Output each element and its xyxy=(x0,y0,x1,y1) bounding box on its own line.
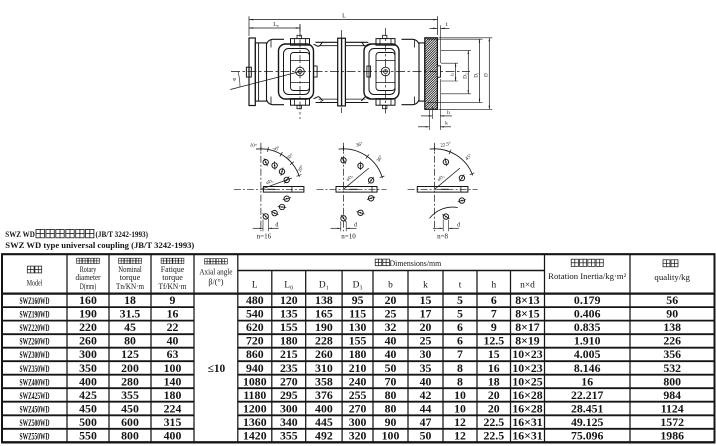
svg-text:quality/kg: quality/kg xyxy=(654,273,690,282)
svg-text:190: 190 xyxy=(79,307,97,321)
svg-text:355: 355 xyxy=(121,388,139,402)
svg-text:270: 270 xyxy=(280,374,298,388)
svg-text:(JB/T 3242-1993): (JB/T 3242-1993) xyxy=(96,229,149,239)
svg-text:40: 40 xyxy=(385,334,397,348)
svg-text:10: 10 xyxy=(454,388,466,402)
svg-text:224: 224 xyxy=(164,401,182,415)
svg-text:90: 90 xyxy=(385,415,397,429)
svg-text:135: 135 xyxy=(280,307,298,321)
svg-text:16: 16 xyxy=(581,374,593,388)
svg-text:400: 400 xyxy=(315,401,333,415)
svg-text:8×19: 8×19 xyxy=(515,334,540,348)
svg-text:95: 95 xyxy=(352,293,364,307)
svg-text:22.5: 22.5 xyxy=(483,428,504,442)
svg-text:300: 300 xyxy=(280,401,298,415)
svg-text:340: 340 xyxy=(280,415,298,429)
svg-text:20°: 20° xyxy=(286,153,295,161)
svg-text:Model: Model xyxy=(27,279,43,288)
svg-text:SWZ450WD: SWZ450WD xyxy=(20,404,50,414)
svg-text:10: 10 xyxy=(454,401,466,415)
svg-text:φD₂: φD₂ xyxy=(436,173,445,182)
svg-text:235: 235 xyxy=(280,361,298,375)
svg-text:270: 270 xyxy=(349,401,367,415)
svg-text:Dimensions/mm: Dimensions/mm xyxy=(390,258,442,268)
svg-text:260: 260 xyxy=(315,347,333,361)
svg-text:350: 350 xyxy=(79,361,97,375)
svg-text:8×17: 8×17 xyxy=(515,320,540,334)
svg-text:10×25: 10×25 xyxy=(512,374,542,388)
svg-text:9: 9 xyxy=(491,320,497,334)
svg-text:1420: 1420 xyxy=(243,428,267,442)
svg-text:25: 25 xyxy=(420,334,432,348)
svg-text:40: 40 xyxy=(167,334,179,348)
svg-text:22: 22 xyxy=(167,320,179,334)
svg-text:SWZ WD type universal coupling: SWZ WD type universal coupling (JB/T 324… xyxy=(5,240,194,250)
svg-text:125: 125 xyxy=(121,347,139,361)
svg-text:17: 17 xyxy=(420,307,432,321)
svg-text:115: 115 xyxy=(349,307,366,321)
svg-text:22.217: 22.217 xyxy=(571,388,604,402)
svg-text:d: d xyxy=(457,222,460,228)
svg-text:300: 300 xyxy=(349,415,367,429)
svg-text:355: 355 xyxy=(280,428,298,442)
svg-text:SWZ190WD: SWZ190WD xyxy=(20,310,50,320)
svg-text:400: 400 xyxy=(164,428,182,442)
svg-text:8×15: 8×15 xyxy=(515,307,540,321)
svg-text:295: 295 xyxy=(280,388,298,402)
svg-text:180: 180 xyxy=(164,388,182,402)
svg-text:4.005: 4.005 xyxy=(574,347,601,361)
svg-text:SWZ550WD: SWZ550WD xyxy=(20,431,50,441)
svg-text:75.096: 75.096 xyxy=(571,428,604,442)
svg-text:≤10: ≤10 xyxy=(208,363,226,375)
svg-text:80: 80 xyxy=(385,388,397,402)
svg-text:16: 16 xyxy=(167,307,179,321)
svg-text:240: 240 xyxy=(349,374,367,388)
svg-text:L: L xyxy=(342,12,346,19)
svg-text:63: 63 xyxy=(167,347,179,361)
svg-text:49.125: 49.125 xyxy=(571,415,604,429)
svg-text:D₁: D₁ xyxy=(319,280,329,290)
svg-text:7: 7 xyxy=(491,307,497,321)
svg-text:22.5: 22.5 xyxy=(483,415,504,429)
svg-text:D₃: D₃ xyxy=(353,280,363,290)
svg-text:200: 200 xyxy=(121,361,139,375)
svg-text:40: 40 xyxy=(385,347,397,361)
svg-text:940: 940 xyxy=(246,361,264,375)
svg-text:φD₂: φD₂ xyxy=(345,173,354,182)
svg-text:n=16: n=16 xyxy=(257,232,272,240)
svg-text:20: 20 xyxy=(488,388,500,402)
svg-text:16×28: 16×28 xyxy=(512,388,542,402)
svg-text:D: D xyxy=(485,73,490,77)
svg-text:40: 40 xyxy=(420,374,432,388)
svg-text:44: 44 xyxy=(420,401,432,415)
svg-text:480: 480 xyxy=(246,293,264,307)
svg-text:18: 18 xyxy=(124,293,136,307)
svg-text:d: d xyxy=(275,222,278,228)
svg-text:1360: 1360 xyxy=(243,415,267,429)
svg-text:450: 450 xyxy=(79,401,97,415)
svg-text:b: b xyxy=(451,73,456,76)
svg-text:D₃: D₃ xyxy=(464,73,469,79)
svg-text:280: 280 xyxy=(121,374,139,388)
svg-text:36°: 36° xyxy=(376,155,384,164)
svg-text:6: 6 xyxy=(491,293,497,307)
svg-text:SWZ350WD: SWZ350WD xyxy=(20,364,50,374)
svg-text:9: 9 xyxy=(170,293,176,307)
svg-text:h: h xyxy=(447,110,450,116)
svg-text:SWZ400WD: SWZ400WD xyxy=(20,377,50,387)
svg-text:h: h xyxy=(491,280,496,290)
svg-text:t: t xyxy=(446,22,448,28)
svg-text:SWZ160WD: SWZ160WD xyxy=(20,296,50,306)
svg-text:20: 20 xyxy=(488,401,500,415)
svg-text:445: 445 xyxy=(315,415,333,429)
svg-text:130: 130 xyxy=(349,320,367,334)
svg-text:n=10: n=10 xyxy=(341,232,356,240)
svg-text:15: 15 xyxy=(420,293,432,307)
svg-text:260: 260 xyxy=(79,334,97,348)
svg-text:226: 226 xyxy=(663,334,681,348)
svg-text:Tf/KN·m: Tf/KN·m xyxy=(159,282,188,291)
svg-text:30: 30 xyxy=(420,347,432,361)
svg-text:138: 138 xyxy=(663,320,681,334)
svg-text:160: 160 xyxy=(79,293,97,307)
svg-text:358: 358 xyxy=(315,374,333,388)
svg-text:300: 300 xyxy=(79,347,97,361)
svg-text:190: 190 xyxy=(315,320,333,334)
svg-text:7: 7 xyxy=(457,347,463,361)
svg-text:0.179: 0.179 xyxy=(574,293,601,307)
svg-text:80: 80 xyxy=(124,334,136,348)
svg-text:18: 18 xyxy=(488,374,500,388)
svg-text:155: 155 xyxy=(280,320,298,334)
svg-text:6: 6 xyxy=(457,320,463,334)
svg-text:140: 140 xyxy=(164,374,182,388)
svg-text:50: 50 xyxy=(385,361,397,375)
svg-text:450: 450 xyxy=(121,401,139,415)
svg-text:90: 90 xyxy=(666,307,678,321)
svg-text:Axial angle: Axial angle xyxy=(199,268,232,277)
svg-text:1200: 1200 xyxy=(243,401,267,415)
svg-text:210: 210 xyxy=(349,361,367,375)
svg-text:15: 15 xyxy=(488,347,500,361)
svg-text:984: 984 xyxy=(663,388,681,402)
svg-text:138: 138 xyxy=(315,293,333,307)
svg-text:425: 425 xyxy=(79,388,97,402)
svg-text:492: 492 xyxy=(315,428,333,442)
svg-text:L₀: L₀ xyxy=(273,22,279,28)
svg-text:180: 180 xyxy=(280,334,298,348)
svg-text:D₁: D₁ xyxy=(475,72,480,78)
svg-text:5: 5 xyxy=(457,293,463,307)
svg-text:SWZ220WD: SWZ220WD xyxy=(20,323,50,333)
svg-text:6: 6 xyxy=(457,334,463,348)
svg-text:500: 500 xyxy=(79,415,97,429)
svg-text:165: 165 xyxy=(315,307,333,321)
svg-text:φ: φ xyxy=(233,76,236,82)
svg-text:12.5: 12.5 xyxy=(483,334,504,348)
svg-text:860: 860 xyxy=(246,347,264,361)
svg-text:70: 70 xyxy=(385,374,397,388)
svg-text:155: 155 xyxy=(349,334,367,348)
svg-text:228: 228 xyxy=(315,334,333,348)
svg-text:Rotation Inertia/kg·m²: Rotation Inertia/kg·m² xyxy=(548,272,627,281)
svg-text:25: 25 xyxy=(385,307,397,321)
svg-text:β/(°): β/(°) xyxy=(208,278,223,287)
svg-text:356: 356 xyxy=(663,347,681,361)
svg-text:16×28: 16×28 xyxy=(512,401,542,415)
svg-text:42: 42 xyxy=(420,388,432,402)
svg-text:16×31: 16×31 xyxy=(512,428,542,442)
svg-text:k: k xyxy=(445,121,448,127)
svg-text:D(mm): D(mm) xyxy=(80,282,97,291)
svg-text:532: 532 xyxy=(663,361,681,375)
svg-text:550: 550 xyxy=(79,428,97,442)
svg-text:540: 540 xyxy=(246,307,264,321)
svg-text:k: k xyxy=(423,280,428,290)
svg-text:800: 800 xyxy=(663,374,681,388)
svg-text:22.5°: 22.5° xyxy=(440,142,452,149)
svg-text:8: 8 xyxy=(457,361,463,375)
svg-text:56: 56 xyxy=(666,293,678,307)
svg-text:8.146: 8.146 xyxy=(574,361,601,375)
svg-text:16×31: 16×31 xyxy=(512,415,542,429)
svg-text:L: L xyxy=(252,280,258,290)
svg-text:Tn/KN·m: Tn/KN·m xyxy=(116,282,145,291)
svg-text:32: 32 xyxy=(385,320,397,334)
svg-text:1124: 1124 xyxy=(661,401,684,415)
svg-text:36°: 36° xyxy=(356,142,364,149)
svg-text:20°: 20° xyxy=(272,146,280,153)
svg-text:50: 50 xyxy=(420,428,432,442)
svg-text:1986: 1986 xyxy=(660,428,684,442)
svg-text:1.910: 1.910 xyxy=(574,334,601,348)
svg-text:8: 8 xyxy=(457,374,463,388)
svg-text:31.5: 31.5 xyxy=(120,307,141,321)
svg-text:20: 20 xyxy=(420,320,432,334)
svg-text:t: t xyxy=(459,280,462,290)
svg-text:12: 12 xyxy=(454,428,466,442)
svg-text:100: 100 xyxy=(382,428,400,442)
svg-text:0.406: 0.406 xyxy=(574,307,601,321)
svg-text:120: 120 xyxy=(280,293,298,307)
svg-text:0.835: 0.835 xyxy=(574,320,601,334)
svg-text:SWZ300WD: SWZ300WD xyxy=(20,350,50,360)
svg-text:SWZ500WD: SWZ500WD xyxy=(20,418,50,428)
svg-text:20°: 20° xyxy=(298,165,306,174)
svg-text:12: 12 xyxy=(454,415,466,429)
svg-text:80: 80 xyxy=(385,401,397,415)
svg-text:SWZ425WD: SWZ425WD xyxy=(20,391,50,401)
svg-text:45°: 45° xyxy=(465,154,473,162)
svg-text:720: 720 xyxy=(246,334,264,348)
svg-text:376: 376 xyxy=(315,388,333,402)
svg-text:L₀: L₀ xyxy=(284,280,293,290)
svg-text:100: 100 xyxy=(164,361,182,375)
svg-text:b: b xyxy=(388,280,393,290)
svg-text:1572: 1572 xyxy=(660,415,684,429)
svg-text:n×d: n×d xyxy=(520,280,535,290)
svg-text:16: 16 xyxy=(488,361,500,375)
svg-text:d: d xyxy=(354,222,357,228)
svg-text:47: 47 xyxy=(420,415,432,429)
svg-text:255: 255 xyxy=(349,388,367,402)
svg-text:10×23: 10×23 xyxy=(512,347,542,361)
svg-text:320: 320 xyxy=(349,428,367,442)
svg-text:600: 600 xyxy=(121,415,139,429)
svg-text:310: 310 xyxy=(315,361,333,375)
svg-text:315: 315 xyxy=(164,415,182,429)
svg-text:20: 20 xyxy=(385,293,397,307)
svg-text:220: 220 xyxy=(79,320,97,334)
svg-text:10°: 10° xyxy=(249,143,257,149)
svg-text:8×13: 8×13 xyxy=(515,293,540,307)
svg-text:180: 180 xyxy=(349,347,367,361)
svg-text:5: 5 xyxy=(457,307,463,321)
svg-text:SWZ WD: SWZ WD xyxy=(5,229,35,239)
svg-text:215: 215 xyxy=(280,347,298,361)
svg-text:10×23: 10×23 xyxy=(512,361,542,375)
svg-text:1080: 1080 xyxy=(243,374,267,388)
svg-text:620: 620 xyxy=(246,320,264,334)
svg-text:35: 35 xyxy=(420,361,432,375)
svg-text:n=8: n=8 xyxy=(437,232,448,240)
svg-text:800: 800 xyxy=(121,428,139,442)
svg-text:1180: 1180 xyxy=(243,388,266,402)
svg-text:φD₂: φD₂ xyxy=(265,178,274,185)
svg-text:28.451: 28.451 xyxy=(571,401,604,415)
svg-text:400: 400 xyxy=(79,374,97,388)
svg-text:45: 45 xyxy=(124,320,136,334)
svg-text:SWZ260WD: SWZ260WD xyxy=(20,337,50,347)
